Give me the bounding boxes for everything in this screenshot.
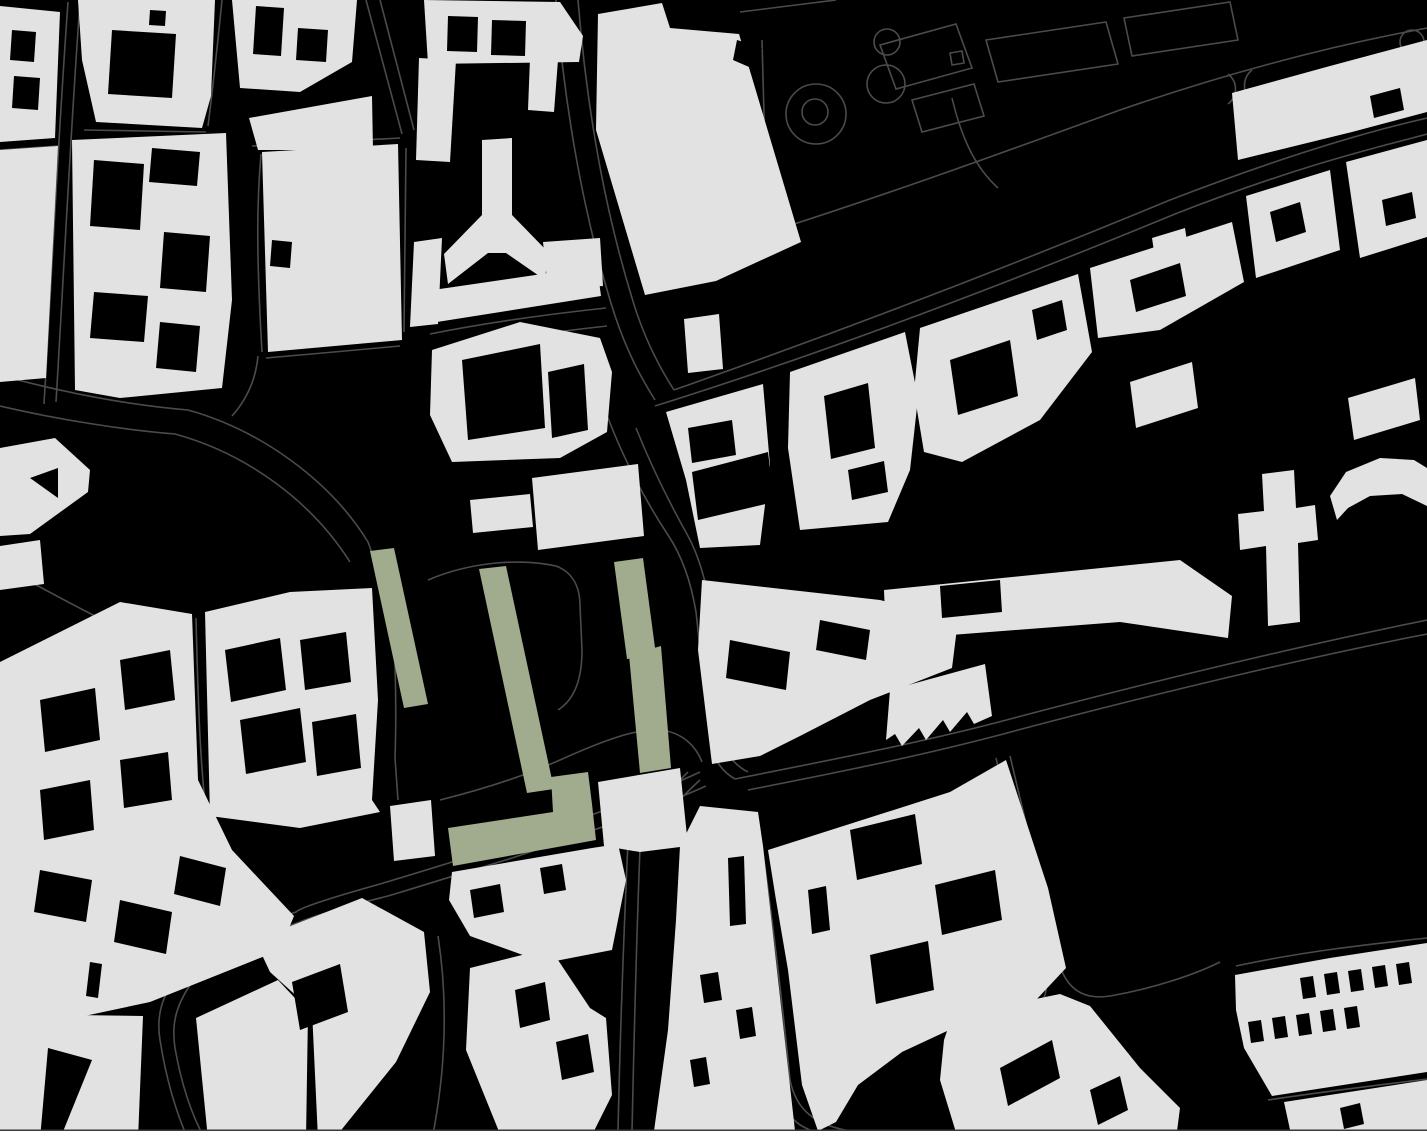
courtyard-7 xyxy=(270,240,292,268)
courtyard-33 xyxy=(556,1034,594,1080)
courtyard-21 xyxy=(312,714,361,776)
palace-east-band xyxy=(528,58,558,112)
courtyard-16 xyxy=(462,344,545,440)
courtyard-17 xyxy=(548,364,588,438)
map-bottom-strip xyxy=(0,1131,1427,1139)
courtyard-23 xyxy=(120,650,175,710)
courtyard-8 xyxy=(90,160,144,230)
courtyard-34 xyxy=(470,884,504,918)
courtyard-19 xyxy=(300,632,351,690)
courtyard-25 xyxy=(120,752,172,808)
courtyard-14 xyxy=(491,20,526,56)
courtyard-13 xyxy=(447,16,478,52)
courtyard-1 xyxy=(10,30,36,62)
courtyard-59 xyxy=(824,383,875,459)
station-south-annex xyxy=(684,314,723,373)
courtyard-6 xyxy=(296,28,328,62)
courtyard-5 xyxy=(253,6,284,56)
map-bottom-border xyxy=(0,1130,1427,1132)
block-plaza-east xyxy=(410,238,442,327)
courtyard-2 xyxy=(12,76,40,110)
courtyard-12 xyxy=(156,322,200,372)
courtyard-10 xyxy=(160,232,210,292)
site-north-building-a xyxy=(470,494,533,533)
site-east-building xyxy=(598,768,688,852)
block-tl-a xyxy=(0,6,60,142)
palace-west-band xyxy=(416,58,456,162)
figure-ground-map xyxy=(0,0,1427,1139)
courtyard-3 xyxy=(108,30,176,98)
left-small xyxy=(0,540,44,590)
site-north-building-b xyxy=(532,464,644,550)
courtyard-4 xyxy=(149,10,166,26)
block-west-mid-strip xyxy=(205,588,380,828)
courtyard-11 xyxy=(90,292,148,342)
courtyard-24 xyxy=(40,780,94,840)
courtyard-36 xyxy=(728,856,746,926)
courtyard-32 xyxy=(515,982,550,1028)
map-canvas xyxy=(0,0,1427,1139)
courtyard-35 xyxy=(540,864,566,894)
courtyard-65 xyxy=(940,580,1002,618)
site-west-sliver xyxy=(390,800,435,861)
courtyard-9 xyxy=(149,148,200,186)
